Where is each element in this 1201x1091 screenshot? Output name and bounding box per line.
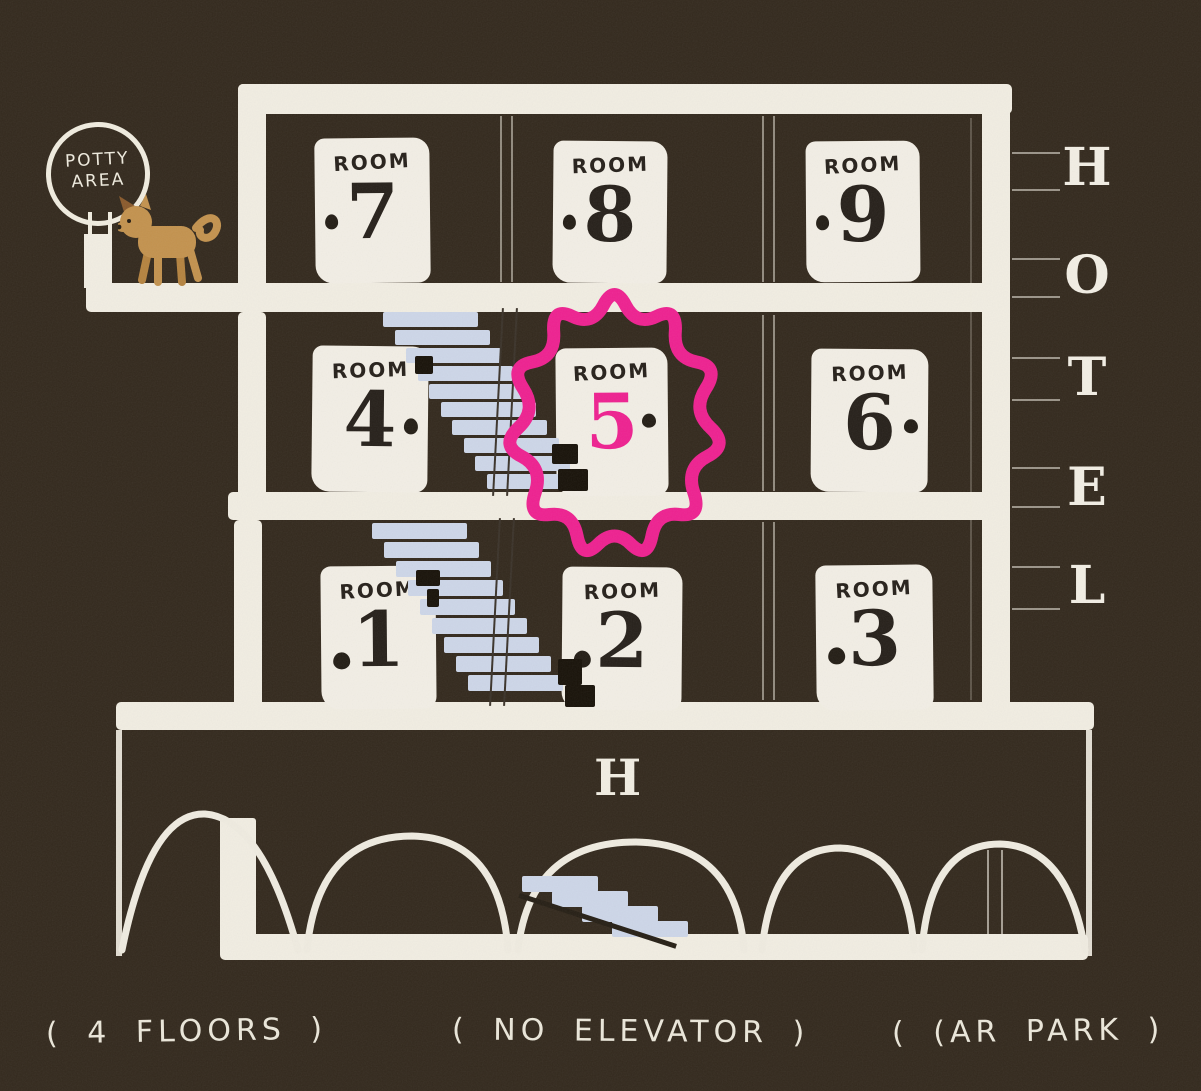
ground-floor-letter: H	[594, 748, 641, 807]
hotel-letter-o: O	[1058, 250, 1116, 302]
stair-step	[522, 876, 598, 892]
room-label: ROOM	[562, 577, 683, 605]
hotel-letter-t: T	[1058, 352, 1116, 404]
sign-mount-line	[1012, 152, 1060, 154]
arch	[307, 836, 508, 950]
room-label: ROOM	[811, 359, 929, 387]
room-label: ROOM	[815, 574, 933, 604]
room-8-door: ROOM 8	[552, 141, 667, 284]
stair-step	[552, 891, 628, 907]
stair-step	[456, 656, 551, 672]
dog-eye	[127, 219, 131, 223]
sign-mount-line	[1012, 258, 1060, 260]
arch	[922, 844, 1085, 950]
door-knob	[816, 215, 829, 230]
room-7-door: ROOM 7	[314, 137, 431, 283]
stair-shadow-block	[427, 589, 439, 607]
caption-car-park: ( (AR PARK )	[892, 1012, 1165, 1051]
door-knob	[404, 418, 418, 434]
stair-step	[396, 561, 491, 577]
sign-mount-line	[1012, 566, 1060, 568]
sign-mount-line	[1012, 189, 1060, 191]
stair-shadow-block	[558, 659, 582, 685]
stair-shadow-block	[415, 356, 433, 374]
room-4-door: ROOM 4	[311, 345, 429, 492]
caption-floors: ( 4 FLOORS )	[46, 1012, 328, 1052]
arch	[762, 848, 914, 950]
room-9-door: ROOM 9	[806, 141, 921, 283]
room-label: ROOM	[553, 151, 668, 179]
hotel-letter-l: L	[1058, 560, 1116, 612]
dog-tail	[196, 218, 217, 238]
stair-step	[372, 523, 467, 539]
stair-shadow-block	[565, 685, 595, 707]
room-5-highlight-circle	[482, 270, 747, 580]
door-knob	[325, 214, 338, 229]
potty-sign-post	[84, 234, 112, 288]
stair-step	[383, 312, 478, 327]
door-knob	[333, 652, 350, 669]
sign-mount-line	[1012, 399, 1060, 401]
sign-mount-line	[1012, 467, 1060, 469]
room-number: 3	[816, 602, 934, 675]
dog	[118, 194, 222, 294]
hotel-cross-section: ROOM 7 ROOM 8 ROOM 9 ROOM 4 ROOM 5 ROOM …	[0, 0, 1201, 1091]
hotel-letter-e: E	[1058, 462, 1116, 514]
sign-mount-line	[1012, 357, 1060, 359]
dog-head	[120, 206, 152, 238]
door-knob	[563, 215, 576, 230]
door-knob	[904, 419, 918, 433]
sign-mount-line	[1012, 608, 1060, 610]
stair-step	[432, 618, 527, 634]
room-label: ROOM	[314, 147, 430, 177]
room-6-door: ROOM 6	[811, 349, 929, 493]
room-label: ROOM	[805, 150, 920, 180]
stair-step	[384, 542, 479, 558]
dog-leg	[180, 254, 182, 282]
dog-leg	[190, 250, 198, 278]
caption-no-elevator: ( NO ELEVATOR )	[452, 1012, 810, 1050]
stair-step	[468, 675, 563, 691]
arch	[122, 814, 298, 950]
door-knob	[828, 647, 845, 664]
sign-mount-line	[1012, 296, 1060, 298]
hotel-letter-h: H	[1058, 142, 1116, 194]
stair-shadow-block	[416, 570, 440, 586]
room-number: 7	[315, 175, 431, 248]
sign-mount-line	[1012, 506, 1060, 508]
room-3-door: ROOM 3	[815, 564, 934, 710]
stair-step	[395, 330, 490, 345]
